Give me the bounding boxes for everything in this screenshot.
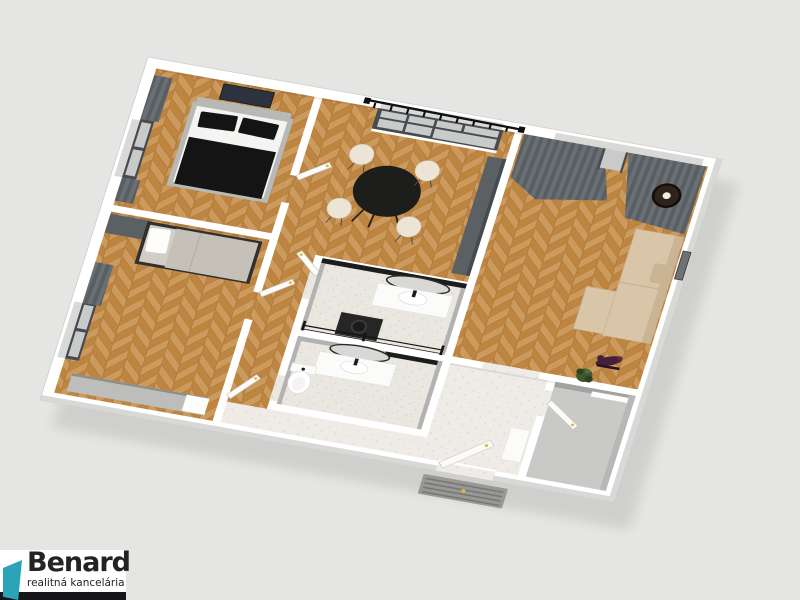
- logo-tagline: realitná kancelária: [27, 577, 125, 589]
- logo-name: Benard: [27, 547, 130, 578]
- render-stage: Benard realitná kancelária: [0, 0, 800, 600]
- agency-logo: Benard realitná kancelária: [0, 550, 126, 600]
- logo-bottom-bar: [0, 592, 126, 600]
- floorplan-3d-render: [0, 0, 800, 600]
